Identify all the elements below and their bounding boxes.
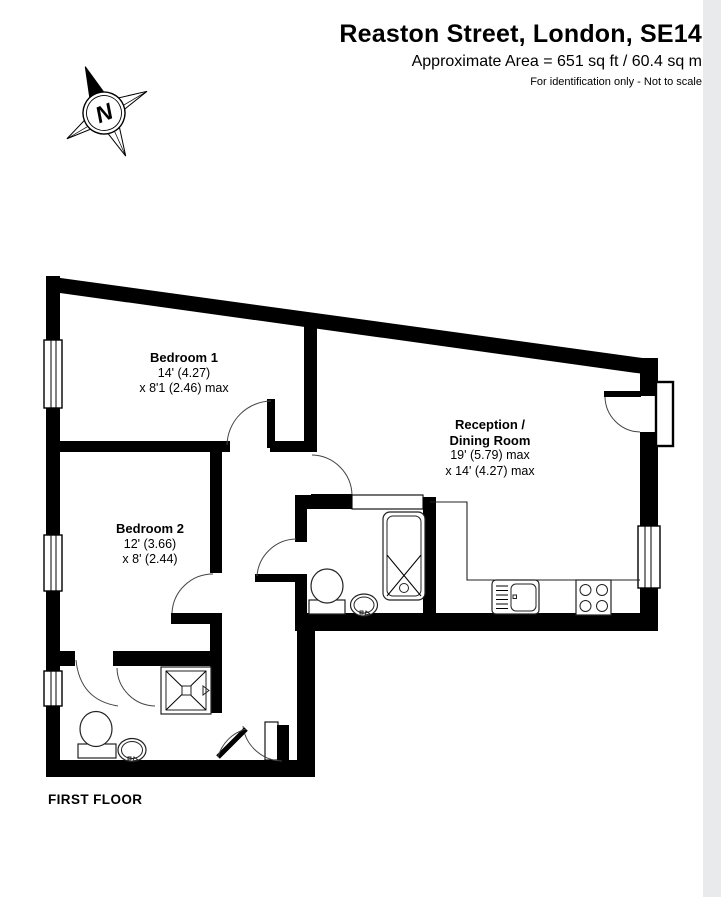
wall-bedroom1-reception — [304, 326, 317, 452]
bath-icon — [383, 512, 425, 600]
room-dim: 14' (4.27) — [98, 366, 270, 382]
door-bedroom2 — [171, 574, 213, 624]
shower-tray-icon — [161, 667, 211, 714]
wall-bottom — [46, 760, 315, 777]
entrance-door-reception — [604, 382, 673, 446]
window-shower-room — [44, 671, 62, 706]
kitchen-counter — [430, 502, 640, 580]
worktop-strip — [352, 495, 423, 509]
room-dim: x 14' (4.27) max — [404, 464, 576, 480]
room-label-bedroom2: Bedroom 2 12' (3.66) x 8' (2.44) — [64, 521, 236, 568]
toilet-bathroom-icon — [309, 569, 345, 614]
kitchen-sink-icon — [492, 580, 539, 614]
toilet-shower-room-icon — [78, 712, 116, 759]
room-dim: 19' (5.79) max — [404, 448, 576, 464]
entry-recess — [265, 722, 278, 760]
hob-icon — [576, 580, 611, 615]
room-name: Dining Room — [404, 433, 576, 449]
basin-shower-room-icon — [118, 739, 146, 762]
room-label-bedroom1: Bedroom 1 14' (4.27) x 8'1 (2.46) max — [98, 350, 270, 397]
window-bedroom1 — [44, 340, 62, 408]
wall-bedroom1-bottom — [58, 441, 317, 452]
room-dim: 12' (3.66) — [64, 537, 236, 553]
floorplan-page: Reaston Street, London, SE14 Approximate… — [0, 0, 721, 897]
room-name: Reception / — [404, 417, 576, 433]
entry-door-area — [218, 722, 289, 761]
floorplan-drawing: N — [0, 0, 721, 897]
door-recess — [656, 382, 673, 446]
room-label-reception: Reception / Dining Room 19' (5.79) max x… — [404, 417, 576, 479]
door-bathroom — [255, 539, 297, 582]
entry-door-leaf — [218, 729, 246, 757]
wall-lower-right — [297, 630, 315, 777]
basin-bathroom-icon — [351, 594, 378, 616]
compass-rose-icon: N — [44, 49, 166, 174]
room-name: Bedroom 2 — [64, 521, 236, 537]
window-bedroom2 — [44, 535, 62, 591]
window-kitchen — [638, 526, 660, 588]
room-name: Bedroom 1 — [98, 350, 270, 366]
door-leaf — [604, 391, 641, 397]
floor-label: FIRST FLOOR — [48, 792, 142, 807]
wall-entry-stub — [277, 725, 289, 760]
room-dim: x 8' (2.44) — [64, 552, 236, 568]
room-dim: x 8'1 (2.46) max — [98, 381, 270, 397]
wall-bathroom-top — [295, 495, 353, 509]
